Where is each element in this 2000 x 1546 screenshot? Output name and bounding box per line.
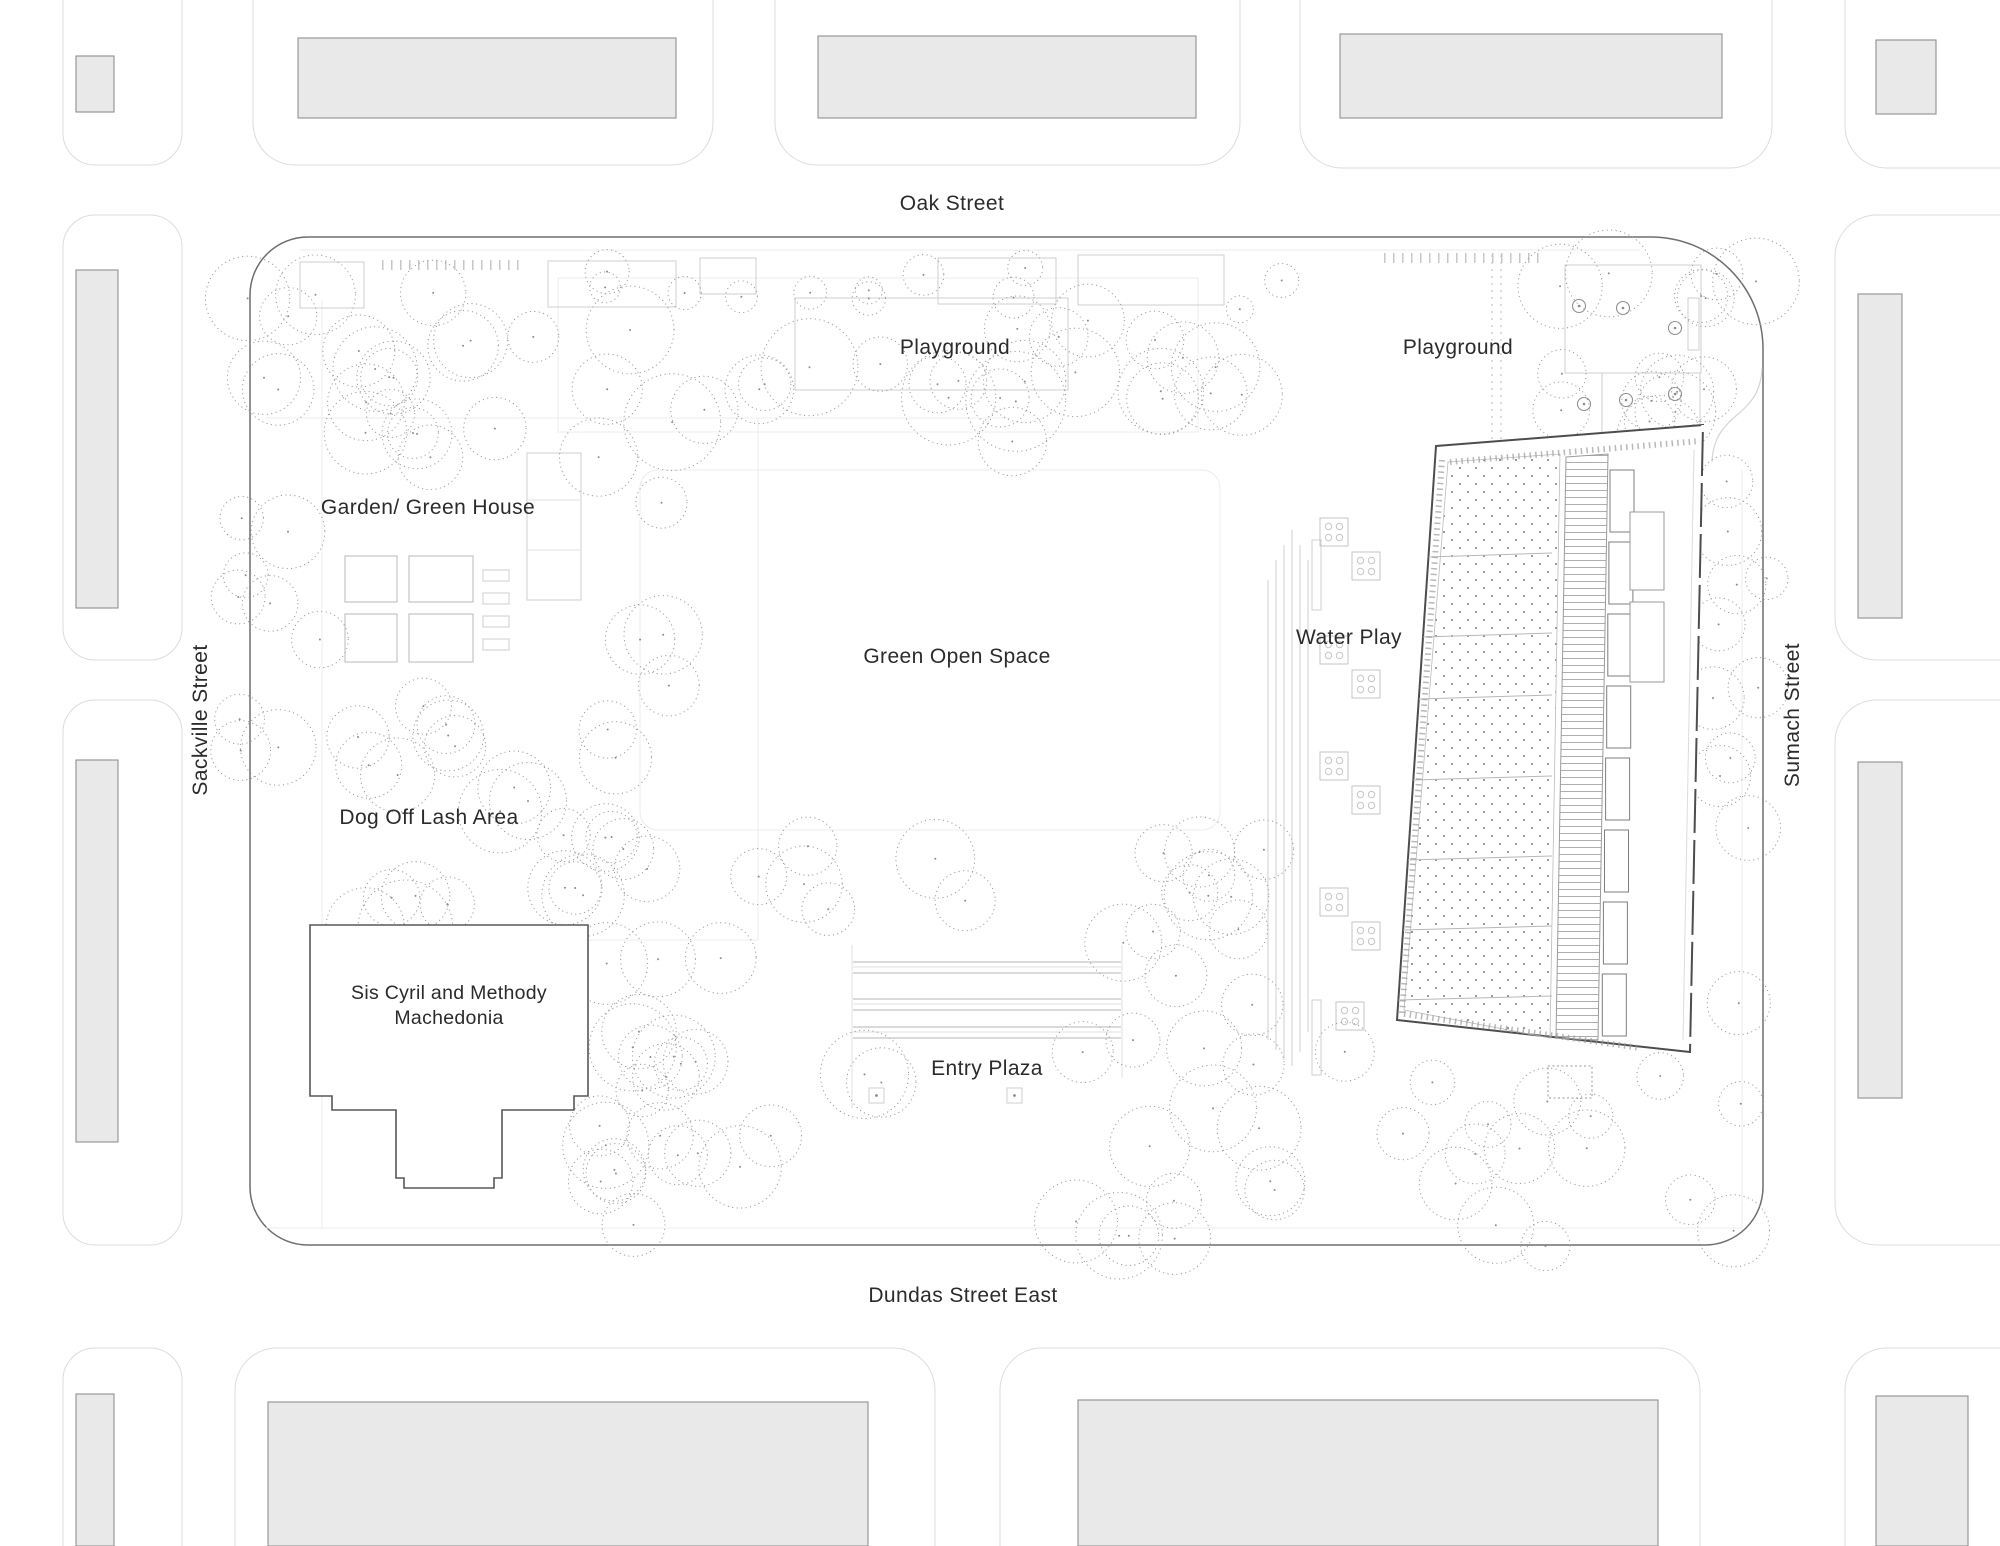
skylight-panel [1602, 974, 1626, 1036]
area-label-green-open-space: Green Open Space [863, 645, 1050, 668]
skylight-panel [1607, 686, 1631, 748]
street-label-east: Sumach Street [1781, 643, 1804, 787]
rooftop-unit [1630, 512, 1664, 590]
church-label-line2: Machedonia [394, 1007, 503, 1029]
context-building [818, 36, 1196, 118]
area-label-dog-off-leash: Dog Off Lash Area [339, 806, 518, 829]
context-building [76, 270, 118, 608]
area-label-water-play: Water Play [1296, 626, 1402, 649]
context-building [1858, 762, 1902, 1098]
street-label-south: Dundas Street East [868, 1284, 1057, 1307]
site-plan-drawing: Sis Cyril and Methody Machedonia Oak Str… [0, 0, 2000, 1546]
skylight-panel [1606, 758, 1630, 820]
context-building [1858, 294, 1902, 618]
context-building [1340, 34, 1722, 118]
area-label-playground-right: Playground [1403, 336, 1513, 359]
street-label-west: Sackville Street [189, 644, 212, 795]
context-building [1078, 1400, 1658, 1546]
church-label-line1: Sis Cyril and Methody [351, 982, 547, 1004]
context-building [1876, 40, 1936, 114]
skylight-panel [1605, 830, 1629, 892]
skylight-panel [1603, 902, 1627, 964]
green-roof-building [1397, 425, 1703, 1098]
area-label-entry-plaza: Entry Plaza [931, 1057, 1043, 1080]
context-building [268, 1402, 868, 1546]
context-building [76, 1394, 114, 1546]
area-label-garden: Garden/ Green House [321, 496, 535, 519]
area-label-playground-left: Playground [900, 336, 1010, 359]
context-building [76, 760, 118, 1142]
skylight-panel [1609, 542, 1633, 604]
street-label-north: Oak Street [900, 192, 1004, 215]
context-building [1876, 1396, 1968, 1546]
rooftop-unit [1630, 602, 1664, 682]
context-building [298, 38, 676, 118]
skylight-panel [1608, 614, 1632, 676]
context-building [76, 56, 114, 112]
